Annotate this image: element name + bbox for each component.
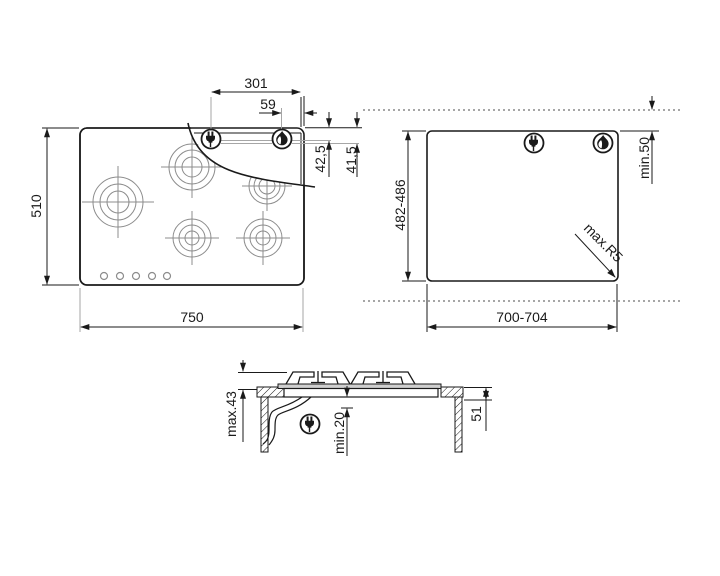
installation-diagram: 301 59 42,5 41,5 510 750 [0, 0, 720, 576]
hob-tub [284, 389, 438, 398]
worktop-section-right [441, 387, 463, 397]
cabinet-side-right [455, 397, 462, 452]
gas-flame-icon [273, 130, 292, 149]
side-view: max.43 min.20 51 [223, 360, 492, 456]
dim-label-max43: max.43 [223, 391, 239, 437]
dim-label-59: 59 [260, 96, 276, 112]
top-view: 301 59 42,5 41,5 510 750 [28, 75, 362, 332]
pan-supports [286, 371, 415, 384]
gas-flame-icon [594, 134, 613, 153]
dim-label-min20: min.20 [331, 412, 347, 454]
dim-label-41-5: 41,5 [343, 146, 359, 173]
dim-label-750: 750 [180, 309, 204, 325]
power-plug-icon [301, 415, 320, 434]
cutout-view: 482-486 700-704 min.50 max.R5 [363, 96, 680, 332]
power-plug-icon [202, 130, 221, 149]
dim-label-51: 51 [468, 406, 484, 422]
installation-diagram-page: 301 59 42,5 41,5 510 750 [0, 0, 720, 576]
dim-label-510: 510 [28, 194, 44, 218]
cabinet-side-left [261, 397, 268, 452]
dim-label-301: 301 [244, 75, 268, 91]
cutout-outline [427, 131, 618, 281]
side-view-dimensions [238, 360, 492, 456]
power-plug-icon [525, 134, 544, 153]
dim-label-min50: min.50 [636, 137, 652, 179]
dim-label-482-486: 482-486 [392, 179, 408, 231]
dim-label-700-704: 700-704 [496, 309, 548, 325]
hob-flange [278, 384, 441, 389]
dim-label-42-5: 42,5 [312, 145, 328, 172]
